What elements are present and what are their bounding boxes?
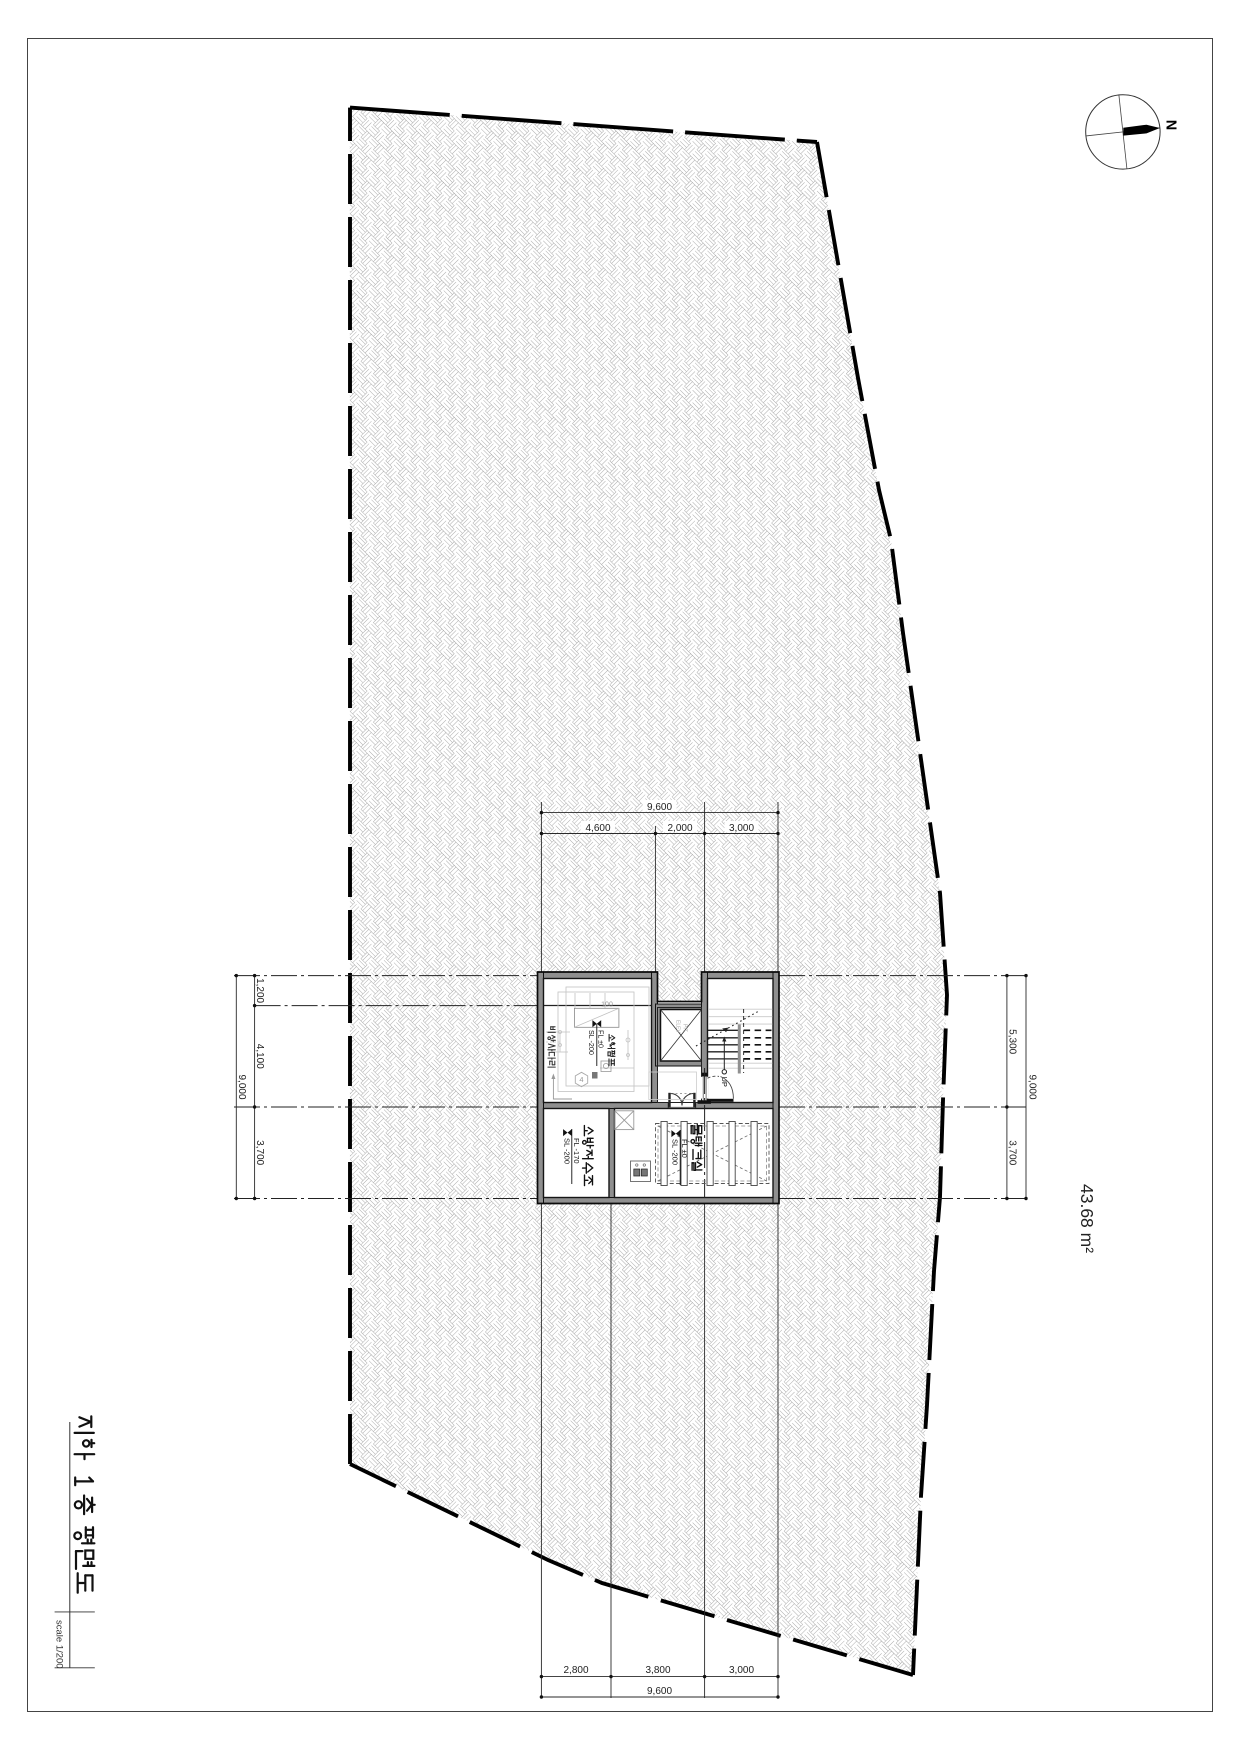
svg-text:9,000: 9,000	[236, 1074, 247, 1099]
svg-text:3,700: 3,700	[254, 1140, 265, 1165]
svg-text:SL -200: SL -200	[587, 1030, 596, 1055]
svg-text:9,600: 9,600	[647, 802, 672, 813]
svg-text:FL -170: FL -170	[572, 1138, 581, 1164]
svg-text:43.68 m²: 43.68 m²	[1077, 1184, 1097, 1253]
svg-text:9,600: 9,600	[647, 1686, 672, 1697]
svg-text:5,300: 5,300	[1007, 1029, 1018, 1054]
svg-text:3,000: 3,000	[729, 823, 754, 834]
svg-text:SL -200: SL -200	[671, 1139, 680, 1165]
svg-text:2,000: 2,000	[667, 823, 692, 834]
svg-text:ELEV: ELEV	[675, 1020, 681, 1033]
svg-text:FL ±0: FL ±0	[597, 1030, 606, 1048]
svg-text:3,800: 3,800	[645, 1665, 670, 1676]
svg-text:4,600: 4,600	[585, 823, 610, 834]
svg-text:4,100: 4,100	[254, 1044, 265, 1069]
svg-text:SL -200: SL -200	[562, 1138, 571, 1164]
svg-text:2,800: 2,800	[563, 1665, 588, 1676]
svg-text:9,000: 9,000	[1027, 1074, 1038, 1099]
svg-text:scale 1/200: scale 1/200	[54, 1620, 65, 1669]
svg-text:3,700: 3,700	[1007, 1140, 1018, 1165]
svg-text:100: 100	[601, 1002, 613, 1009]
svg-text:1,200: 1,200	[254, 978, 265, 1003]
svg-text:N: N	[1163, 120, 1179, 130]
svg-text:4: 4	[579, 1075, 583, 1084]
svg-text:PIT: PIT	[682, 1024, 688, 1032]
svg-text:FL ±0: FL ±0	[680, 1139, 689, 1158]
svg-text:3,000: 3,000	[729, 1665, 754, 1676]
